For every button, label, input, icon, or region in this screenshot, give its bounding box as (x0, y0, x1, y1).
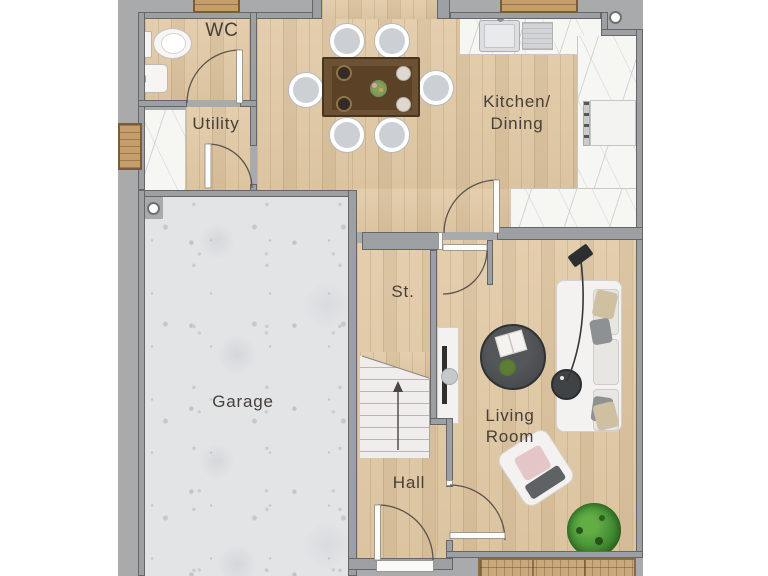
potted-plant (567, 503, 621, 557)
soil-pipe-icon (147, 202, 160, 215)
wall (636, 29, 643, 558)
sink-drainer (522, 22, 553, 50)
wall (138, 190, 357, 197)
door-jamb (438, 232, 443, 250)
wall (348, 190, 357, 576)
cooker-knobs (583, 101, 590, 146)
sofa-back-cushion (593, 339, 619, 385)
wall (240, 100, 257, 107)
room-label-wc: WC (196, 19, 248, 43)
wall (138, 12, 322, 19)
kitchen-sink (479, 20, 520, 52)
place-setting-dark (336, 96, 352, 112)
place-setting-dark (336, 65, 352, 81)
place-setting-light (396, 97, 411, 112)
utility-external-door (118, 123, 142, 170)
sofa (556, 280, 622, 432)
wall (446, 418, 453, 487)
wall (497, 227, 643, 240)
wall (450, 12, 601, 19)
room-label-utility: Utility (176, 113, 256, 134)
wall (437, 0, 450, 19)
floor-lamp-base (551, 369, 582, 400)
patio-deck (478, 558, 636, 576)
garage-floor (145, 197, 348, 576)
wall (362, 232, 443, 250)
wall (430, 250, 437, 425)
floor-plan: WC Utility Kitchen/ Dining Garage St. Ha… (0, 0, 768, 576)
flue-block (193, 0, 240, 13)
room-label-garage: Garage (201, 391, 285, 412)
room-label-living-room: Living Room (468, 405, 552, 447)
dining-table (322, 57, 420, 117)
wall (446, 551, 643, 558)
kitchen-floor-marble-alcove (510, 188, 636, 227)
tv-console-dot (441, 368, 458, 385)
wall (312, 0, 322, 19)
room-label-storage: St. (385, 281, 421, 302)
place-setting-light (396, 66, 411, 81)
front-door-threshold (376, 560, 434, 572)
wall (138, 100, 187, 107)
table-centerpiece (370, 80, 387, 97)
flue-block (500, 0, 578, 13)
kitchen-floor-south (352, 189, 510, 232)
room-label-kitchen-dining: Kitchen/ Dining (463, 91, 571, 135)
cooker-body (590, 100, 636, 146)
door-jamb (446, 480, 453, 486)
room-label-hall: Hall (386, 472, 432, 493)
coffee-table-plant (499, 359, 516, 376)
wall (138, 190, 145, 576)
kitchen-floor-bump (322, 0, 437, 19)
toilet-seat (161, 33, 186, 54)
wall (487, 240, 493, 285)
sofa-pillow-gray (589, 317, 613, 345)
soil-pipe-icon (609, 11, 622, 24)
